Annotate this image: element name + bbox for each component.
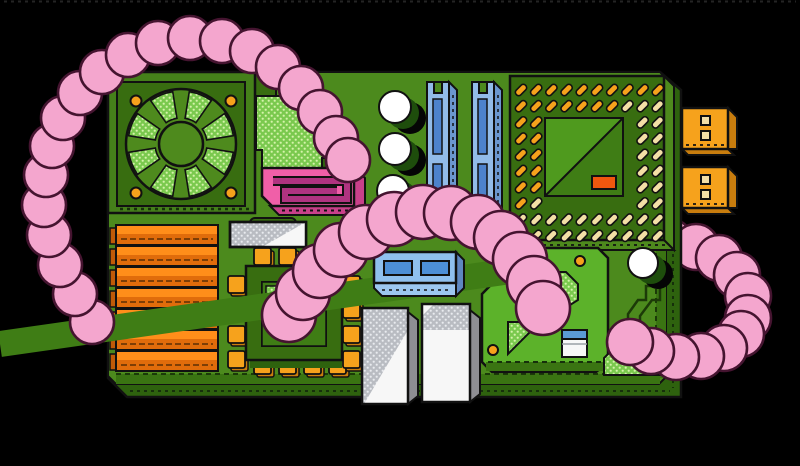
bios-label	[562, 330, 587, 339]
sata-maze	[273, 181, 347, 199]
chip-pin	[228, 326, 245, 343]
chip-pin	[228, 276, 245, 293]
illustration-canvas	[0, 0, 800, 466]
connector-port	[421, 261, 449, 275]
chip-pin	[254, 248, 271, 265]
chip-pin	[343, 326, 360, 343]
heatsink-fin-top	[117, 352, 217, 360]
motherboard-illustration	[0, 0, 800, 466]
usb-ports	[682, 108, 737, 214]
blue-connector	[374, 252, 464, 296]
via	[575, 256, 585, 266]
usb-port	[682, 108, 737, 155]
socket-marker	[592, 176, 616, 189]
heatsink-fin-top	[117, 268, 217, 276]
capacitor-top	[379, 91, 411, 123]
capacitor-right	[422, 304, 480, 402]
heatsink	[110, 225, 218, 371]
fan-screw	[131, 188, 142, 199]
heatsink-fin-top	[117, 289, 217, 297]
ram-notch	[434, 82, 442, 93]
electrolytic-capacitors	[362, 304, 480, 404]
socket-bevel	[664, 76, 674, 250]
capacitor-top	[628, 248, 658, 278]
usb-pin-hole	[701, 175, 710, 184]
fan-hub	[159, 122, 203, 166]
bios-chip	[562, 330, 587, 357]
usb-pin-hole	[701, 116, 710, 125]
platform-bevel	[486, 362, 604, 371]
cpu-socket	[510, 76, 674, 250]
chip-pin	[228, 351, 245, 368]
ram-slot	[478, 99, 487, 154]
capacitor-left	[362, 308, 418, 404]
usb-face	[682, 167, 728, 208]
cap-side	[408, 312, 418, 404]
resistor	[230, 218, 306, 247]
worm-segment	[516, 281, 570, 335]
fan-screw	[226, 96, 237, 107]
connector-port	[384, 261, 412, 275]
usb-port	[682, 167, 737, 214]
usb-pin-hole	[701, 131, 710, 140]
cap-side	[470, 310, 480, 402]
worm-segment	[326, 138, 370, 182]
fan-screw	[226, 188, 237, 199]
ram-notch	[479, 82, 487, 93]
via	[488, 345, 498, 355]
usb-side	[728, 167, 737, 208]
usb-side	[728, 108, 737, 149]
ram-slot	[433, 99, 442, 154]
usb-pin-hole	[701, 190, 710, 199]
heatsink-fin-top	[117, 247, 217, 255]
heatsink-fin-top	[117, 226, 217, 234]
fan-screw	[131, 96, 142, 107]
worm-segment	[607, 319, 653, 365]
cpu-fan-module	[108, 72, 255, 213]
capacitor-top	[379, 133, 411, 165]
usb-face	[682, 108, 728, 149]
chip-pin	[343, 351, 360, 368]
